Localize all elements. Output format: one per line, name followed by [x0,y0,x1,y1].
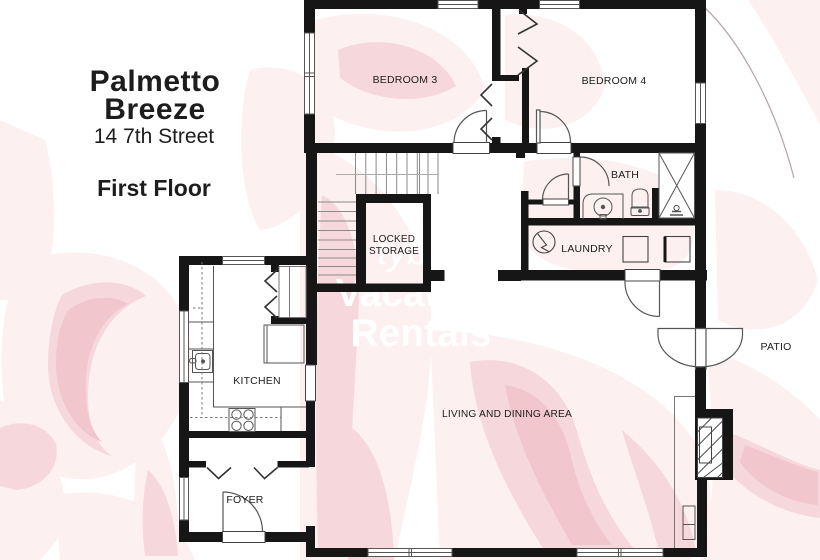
svg-text:BATH: BATH [611,169,639,181]
svg-text:LAUNDRY: LAUNDRY [561,243,612,255]
svg-text:LOCKED: LOCKED [373,234,415,245]
svg-text:14 7th Street: 14 7th Street [94,125,214,148]
svg-text:Rentals: Rentals [351,312,492,355]
svg-text:Breeze: Breeze [104,93,205,126]
svg-text:BEDROOM 4: BEDROOM 4 [582,75,647,87]
svg-text:First Floor: First Floor [97,175,211,201]
svg-text:KITCHEN: KITCHEN [233,375,281,387]
svg-text:FOYER: FOYER [226,494,263,506]
svg-text:STORAGE: STORAGE [369,246,419,257]
svg-text:PATIO: PATIO [761,341,792,353]
svg-text:BEDROOM 3: BEDROOM 3 [373,74,438,86]
svg-text:LIVING AND DINING AREA: LIVING AND DINING AREA [442,409,572,420]
